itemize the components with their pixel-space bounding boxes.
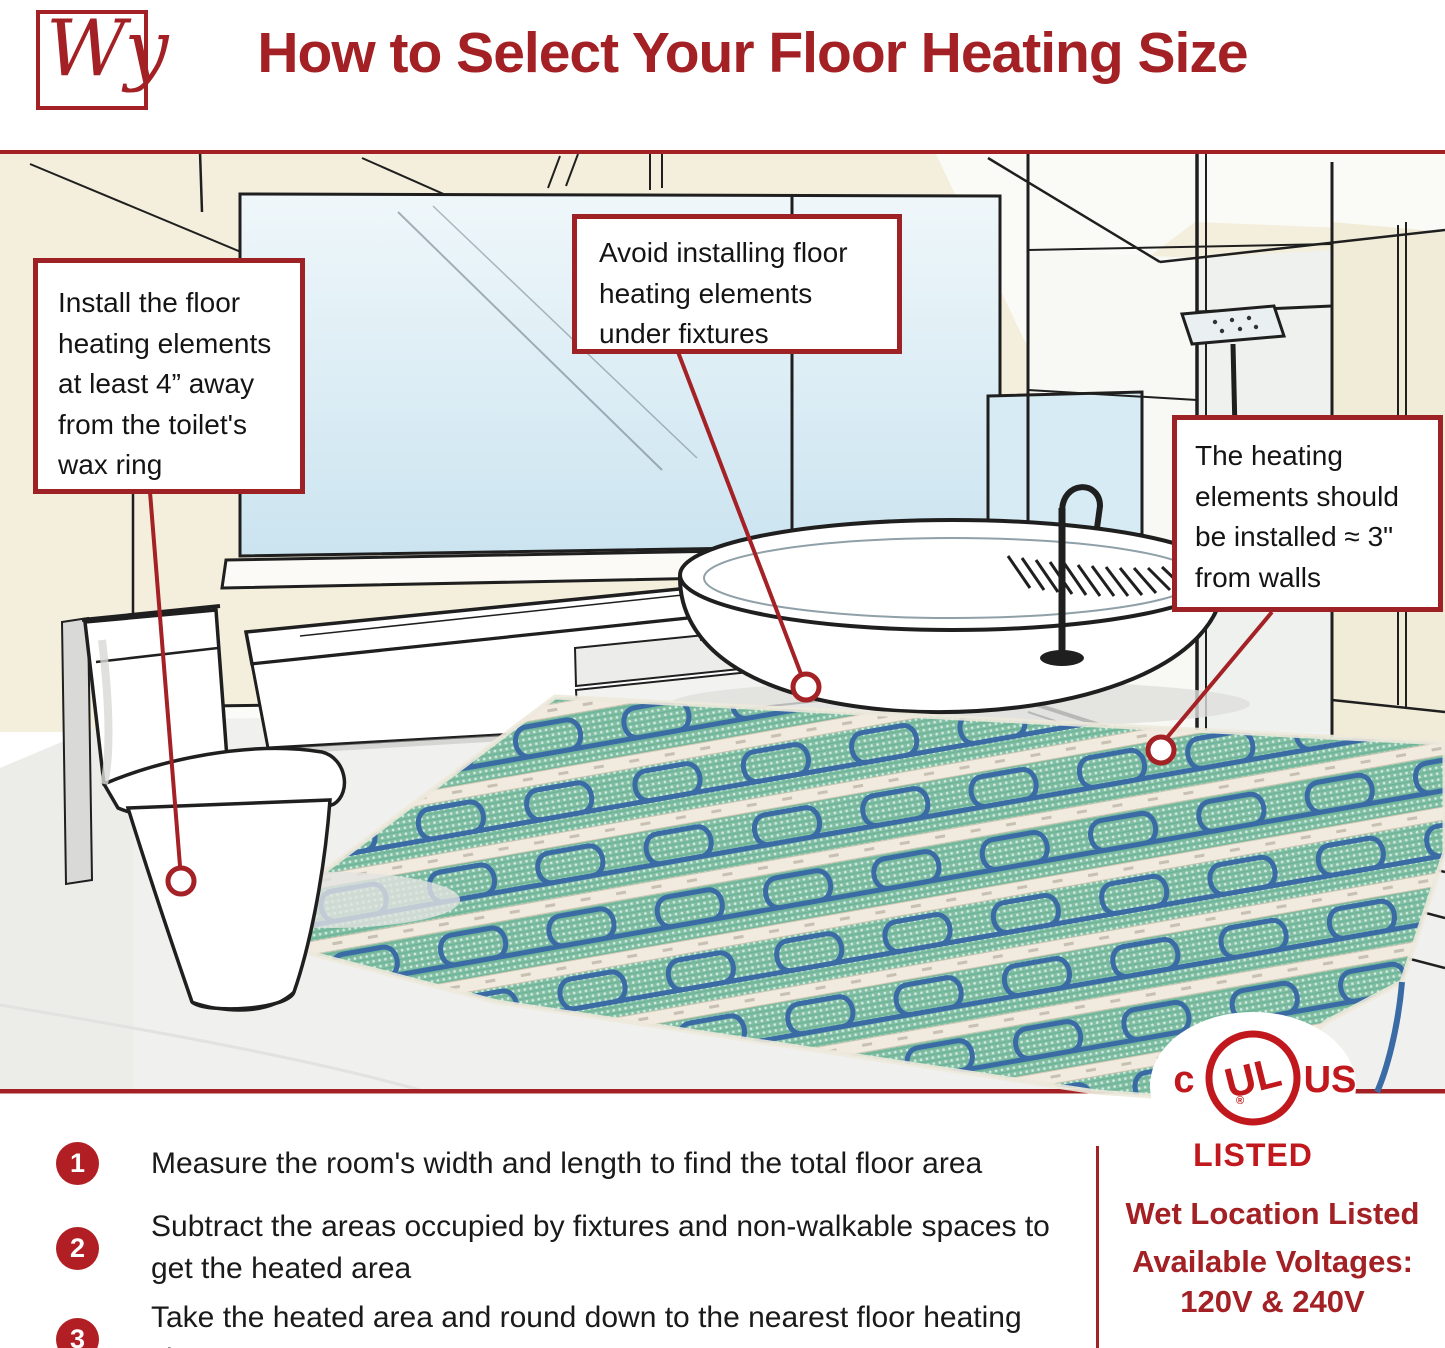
callout-wall-clearance: The heating elements should be installed…: [1172, 415, 1443, 612]
step-row-2: 2 Subtract the areas occupied by fixture…: [56, 1206, 1066, 1290]
frame-line-top: [0, 150, 1445, 154]
wet-location-label: Wet Location Listed: [1100, 1196, 1445, 1232]
step-2-badge: 2: [56, 1227, 99, 1270]
step-2-text: Subtract the areas occupied by fixtures …: [151, 1206, 1066, 1290]
step-1-badge: 1: [56, 1142, 99, 1185]
ul-certification-mark: UL ® c US LISTED: [1148, 1008, 1368, 1180]
available-voltages-label: Available Voltages:: [1100, 1244, 1445, 1280]
callout-avoid-fixtures: Avoid installing floor heating elements …: [572, 214, 902, 354]
step-1-text: Measure the room's width and length to f…: [151, 1143, 982, 1185]
marker-toilet: [168, 868, 194, 894]
step-row-1: 1 Measure the room's width and length to…: [56, 1142, 1066, 1185]
page-title: How to Select Your Floor Heating Size: [0, 20, 1445, 86]
step-3-text: Take the heated area and round down to t…: [151, 1297, 1066, 1348]
ul-us-letters: US: [1304, 1059, 1357, 1101]
ul-c-letter: c: [1173, 1059, 1194, 1101]
step-row-3: 3 Take the heated area and round down to…: [56, 1297, 1066, 1348]
ul-listed-logo: UL ® c US LISTED: [1148, 1008, 1368, 1180]
footer-divider: [1096, 1146, 1099, 1348]
ul-listed-text: LISTED: [1193, 1137, 1313, 1173]
marker-wall: [1148, 737, 1174, 763]
marker-bathtub: [793, 674, 819, 700]
step-3-badge: 3: [56, 1318, 99, 1348]
infographic-page: Wy How to Select Your Floor Heating Size: [0, 0, 1445, 1348]
registered-symbol: ®: [1236, 1095, 1244, 1107]
available-voltages-value: 120V & 240V: [1100, 1284, 1445, 1320]
callout-toilet-clearance: Install the floor heating elements at le…: [33, 258, 305, 494]
